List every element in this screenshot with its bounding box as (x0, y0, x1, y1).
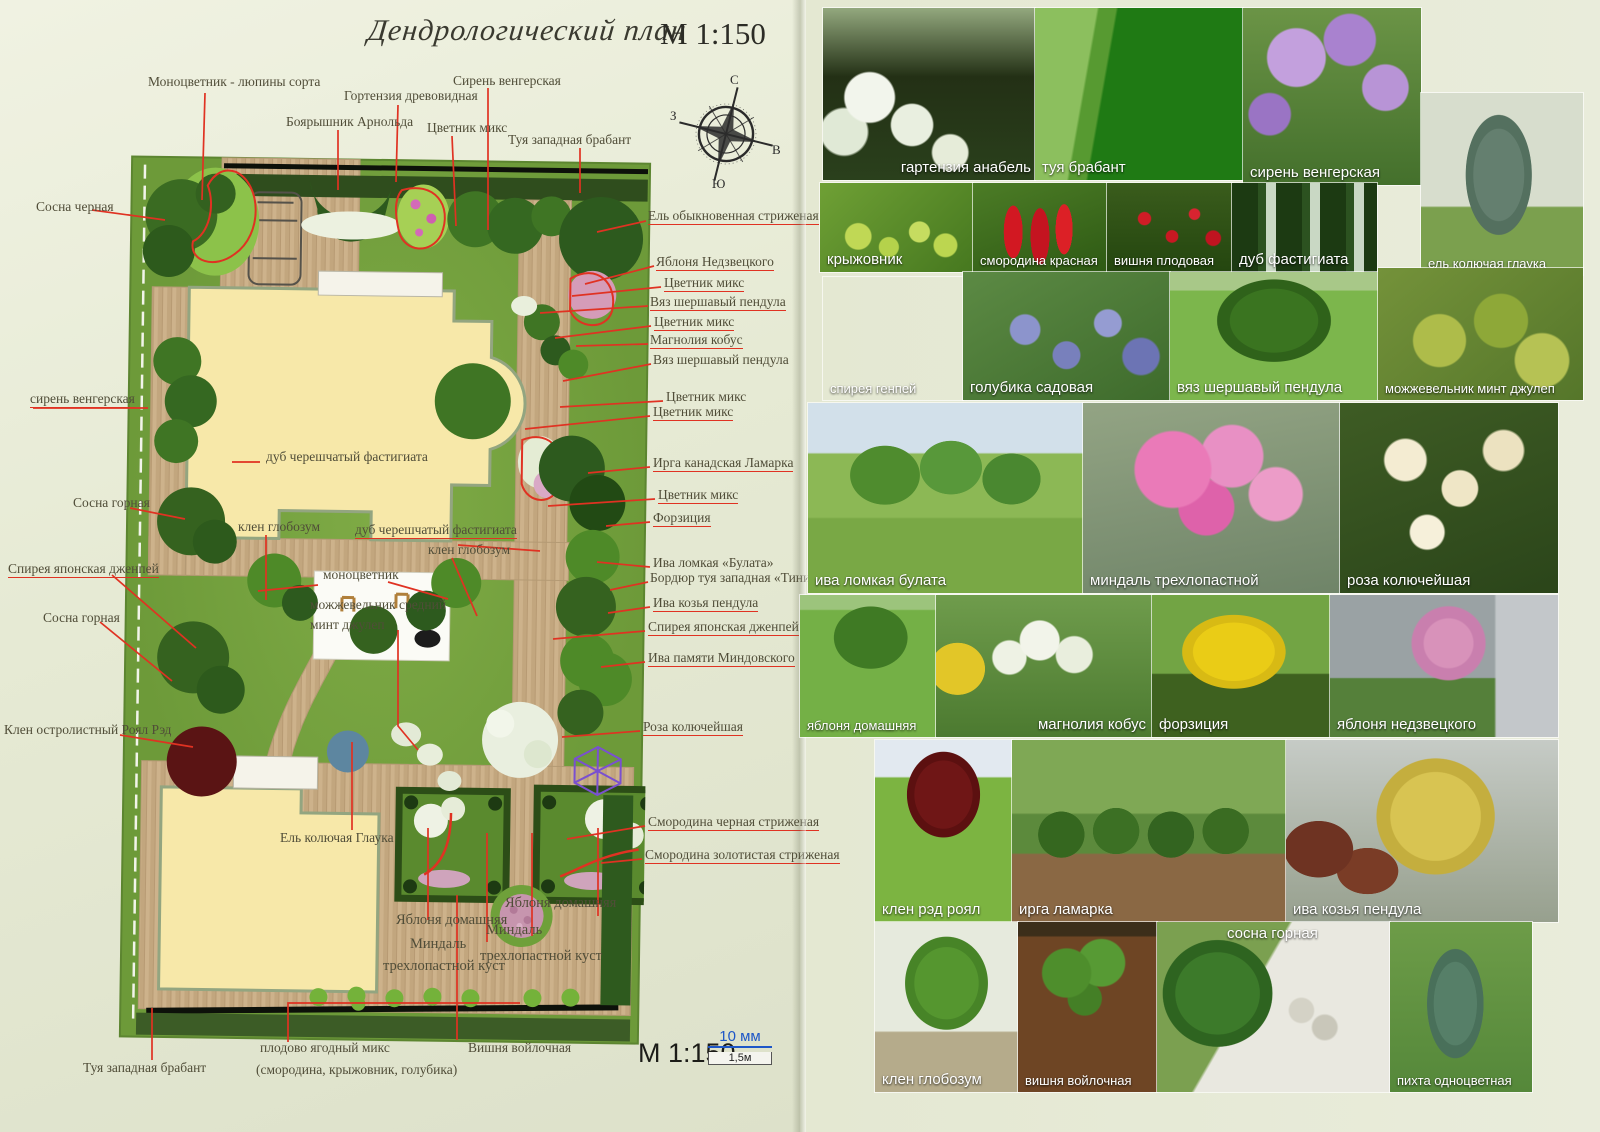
photo-caption: туя брабант (1042, 159, 1126, 176)
compass-west: З (670, 108, 677, 123)
photo-caption: клен рэд роял (882, 901, 980, 918)
plan-label: Клен остролистный Роял Рэд (4, 722, 171, 737)
plan-label: Туя западная брабант (83, 1060, 206, 1075)
photo-caption: спирея генпей (830, 381, 916, 396)
plan-label: Ива козья пендула (653, 595, 758, 612)
photo-fruit-cherry: вишня плодовая (1107, 183, 1232, 272)
photo-brittle-willow-bulata: ива ломкая булата (808, 403, 1083, 593)
plan-label: Смородина черная стриженая (648, 814, 819, 831)
plan-label: Вяз шершавый пендула (653, 352, 789, 367)
parterre-left (398, 790, 507, 899)
photo-thuja-brabant: туя брабант (1035, 8, 1243, 180)
photo-caption: ива ломкая булата (815, 572, 946, 589)
plan-label: Цветник микс (666, 389, 746, 404)
plan-label: моноцветник (323, 567, 399, 582)
scale-bar-m: 1,5м (708, 1052, 772, 1065)
parterre-right (536, 788, 654, 902)
plan-label: Яблоня домашняя (505, 896, 616, 911)
photo-forsythia: форзиция (1152, 595, 1330, 737)
photo-flowering-almond: миндаль трехлопастной (1083, 403, 1340, 593)
plan-label: дуб черешчатый фастигиата (355, 522, 517, 539)
dendrological-plan-sheet: Дендрологический план М 1:150 С В (0, 0, 1600, 1132)
plan-label: Ирга канадская Ламарка (653, 455, 793, 472)
plan-label: плодово ягодный микс (260, 1040, 390, 1055)
plan-label: Спирея японская дженпей (648, 619, 799, 636)
photo-caption: яблоня недзвецкого (1337, 716, 1476, 733)
compass-south: Ю (712, 176, 725, 190)
scale-bar-mm: 10 мм (708, 1028, 772, 1048)
photo-mountain-pine: сосна горная (1157, 922, 1390, 1092)
photo-maple-red-royal: клен рэд роял (875, 740, 1012, 922)
photo-burnet-rose: роза колючейшая (1340, 403, 1558, 593)
page-scale: М 1:150 (660, 16, 766, 52)
photo-caption: голубика садовая (970, 379, 1093, 396)
plan-label: Цветник микс (658, 487, 738, 504)
plan-label: клен глобозум (238, 519, 320, 534)
photo-caption: ива козья пендула (1293, 901, 1421, 918)
photo-caption: ирга ламарка (1019, 901, 1113, 918)
photo-caption: вишня войлочная (1025, 1073, 1132, 1088)
plan-label: Ель обыкновенная стриженая (648, 208, 819, 225)
photo-red-currant: смородина красная (973, 183, 1107, 272)
plan-label: Спирея японская дженпей (8, 561, 159, 578)
photo-white-fir: пихта одноцветная (1390, 922, 1532, 1092)
plan-label: клен глобозум (428, 542, 510, 557)
plan-label: Миндаль (486, 923, 542, 938)
plan-label: Сирень венгерская (453, 73, 561, 88)
photo-caption: миндаль трехлопастной (1090, 572, 1259, 589)
photo-caption: пихта одноцветная (1397, 1073, 1512, 1088)
plan-label: Вишня войлочная (468, 1040, 571, 1055)
photo-caption: форзиция (1159, 716, 1228, 733)
photo-caption: дуб фастигиата (1239, 251, 1349, 268)
plan-label: трехлопастной куст (480, 949, 602, 964)
photo-caption: можжевельник минт джулеп (1385, 381, 1555, 396)
photo-caption: клен глобозум (882, 1071, 982, 1088)
compass-east: В (772, 142, 781, 157)
photo-caption: сирень венгерская (1250, 164, 1380, 181)
photo-gooseberry: крыжовник (820, 183, 973, 272)
photo-caption: яблоня домашняя (807, 718, 916, 733)
scale-bar: 10 мм 1,5м (708, 1028, 772, 1065)
photo-maple-globosum: клен глобозум (875, 922, 1018, 1092)
plan-label: минт джулеп (310, 617, 385, 632)
photo-garden-blueberry: голубика садовая (963, 272, 1170, 400)
photo-domestic-apple: яблоня домашняя (800, 595, 936, 737)
photo-caption: смородина красная (980, 253, 1098, 268)
plan-label: Магнолия кобус (650, 332, 743, 349)
photo-caption: гартензия анабель (901, 159, 1031, 176)
photo-spirea-genpei: спирея генпей (823, 277, 963, 400)
plan-label: Яблоня Недзвецкого (656, 254, 774, 271)
photo-caption: вяз шершавый пендула (1177, 379, 1342, 396)
photo-weeping-elm: вяз шершавый пендула (1170, 272, 1378, 400)
photo-caption: вишня плодовая (1114, 253, 1214, 268)
plan-label: Вяз шершавый пендула (650, 294, 786, 311)
plan-label: Цветник микс (654, 314, 734, 331)
photo-caption: роза колючейшая (1347, 572, 1470, 589)
plan-label: (смородина, крыжовник, голубика) (256, 1062, 457, 1077)
photo-juniper-mint-julep: можжевельник минт джулеп (1378, 268, 1583, 400)
photo-hungarian-lilac: сирень венгерская (1243, 8, 1421, 185)
photo-caption: магнолия кобус (1038, 716, 1146, 733)
compass-north: С (730, 72, 739, 87)
plan-label: Цветник микс (653, 404, 733, 421)
photo-hydrangea-anabelle: гартензия анабель (823, 8, 1035, 180)
photo-caption: крыжовник (827, 251, 902, 268)
plan-label: Ива памяти Миндовского (648, 650, 795, 667)
photo-caption: сосна горная (1227, 925, 1318, 942)
plan-label: Миндаль (410, 937, 466, 952)
plan-page: Дендрологический план М 1:150 С В (0, 0, 800, 1132)
plan-label: сирень венгерская (30, 391, 135, 408)
plan-label: можжевельник средний (310, 597, 446, 612)
plan-label: Моноцветник - люпины сорта (148, 74, 320, 89)
plan-label: Ель колючая Глаука (280, 830, 394, 845)
plan-label: Боярышник Арнольда (286, 114, 413, 129)
plan-label: Сосна горная (43, 610, 120, 625)
photo-serviceberry-lamarck: ирга ламарка (1012, 740, 1286, 922)
plan-label: Роза колючейшая (643, 719, 743, 736)
plan-label: Сосна черная (36, 199, 114, 214)
photo-felt-cherry: вишня войлочная (1018, 922, 1157, 1092)
compass-rose: С В Ю З (668, 72, 784, 190)
plan-label: Цветник микс (427, 120, 507, 135)
plan-label: Форзиция (653, 510, 711, 527)
plan-label: Ива ломкая «Булата» (653, 555, 774, 570)
photo-goat-willow-pendula: ива козья пендула (1286, 740, 1558, 922)
plan-label: Гортензия древовидная (344, 88, 478, 103)
photo-fastigiate-oak: дуб фастигиата (1232, 183, 1377, 272)
photo-blue-spruce-glauca: ель колючая глаука (1421, 93, 1583, 275)
plan-label: Цветник микс (664, 275, 744, 292)
plan-label: Смородина золотистая стриженая (645, 847, 840, 864)
plan-label: Сосна горная (73, 495, 150, 510)
page-title: Дендрологический план (366, 14, 688, 48)
plan-label: дуб черешчатый фастигиата (266, 449, 428, 464)
photo-magnolia-kobus: магнолия кобус (936, 595, 1152, 737)
photo-nedzvetsky-apple: яблоня недзвецкого (1330, 595, 1558, 737)
plan-label: Туя западная брабант (508, 132, 631, 147)
